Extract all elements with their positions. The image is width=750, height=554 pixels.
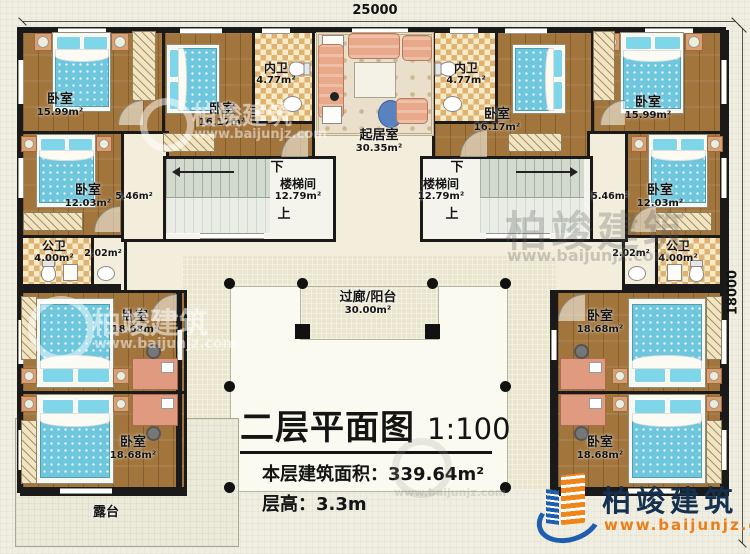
stair-direction-arrow <box>516 171 574 173</box>
column-square <box>295 324 310 339</box>
nightstand <box>21 136 37 152</box>
room-name: 卧室 <box>47 92 73 107</box>
pillow <box>77 399 109 414</box>
nightstand <box>612 396 628 412</box>
wardrobe <box>21 420 37 484</box>
label-corridor-left: 5.46m² <box>108 192 160 202</box>
label-bedroom-top-right: 卧室15.99m² <box>613 96 683 121</box>
pillow <box>634 368 666 383</box>
desk <box>132 358 178 390</box>
pillow <box>56 36 81 50</box>
label-stair-left: 楼梯间12.79m² <box>265 178 331 202</box>
desk <box>132 394 178 426</box>
logo-url: www.baijunjz.com <box>604 516 750 534</box>
window <box>180 28 222 34</box>
wall-right-wing-inner <box>550 290 556 490</box>
nightstand <box>21 368 37 384</box>
dimension-width-label: 25000 <box>345 3 405 18</box>
room-area: 18.68m² <box>98 450 168 461</box>
label-bath-public-left: 公卫4.00m² <box>23 240 85 264</box>
room-area: 15.99m² <box>613 110 683 121</box>
wall-bath-right-bottom <box>622 284 726 290</box>
nightstand <box>34 33 52 51</box>
window <box>18 60 24 104</box>
column-round <box>224 482 235 493</box>
room-name: 公卫 <box>42 239 66 253</box>
plant-pot <box>330 92 339 101</box>
armchair <box>402 35 432 61</box>
room-area: 16.17m² <box>187 117 257 128</box>
label-stair-right-down: 下 <box>448 161 466 175</box>
wardrobe <box>23 212 83 231</box>
dimension-line-top <box>22 21 736 22</box>
room-name: 卧室 <box>587 435 613 450</box>
nightstand <box>21 396 37 412</box>
coffee-table <box>354 62 396 98</box>
sink <box>283 96 302 112</box>
room-name: 内卫 <box>264 61 288 75</box>
window <box>177 330 183 360</box>
sheet-fold <box>55 49 108 61</box>
room-name: 楼梯间 <box>280 177 316 191</box>
room-area: 16.17m² <box>462 122 532 133</box>
label-bath-public-right: 公卫4.00m² <box>647 240 709 264</box>
desk <box>560 358 606 390</box>
desk <box>560 394 606 426</box>
washer <box>667 264 682 281</box>
wardrobe <box>508 133 562 152</box>
label-bedroom-top-left-2: 卧室16.17m² <box>187 103 257 128</box>
nightstand <box>111 33 129 51</box>
wardrobe <box>21 296 37 360</box>
pillow <box>625 36 652 50</box>
room-name: 卧室 <box>122 309 148 324</box>
room-area: 5.46m² <box>591 191 629 202</box>
logo-building-blue-icon <box>546 489 559 525</box>
sheet-fold <box>545 48 554 111</box>
pillow <box>68 138 93 151</box>
room-area: 4.77m² <box>436 75 496 86</box>
window <box>60 488 112 494</box>
sheet-fold <box>40 355 110 368</box>
label-bath-inner-right: 内卫4.77m² <box>436 62 496 86</box>
stair-direction-arrow <box>176 171 234 173</box>
bed <box>512 44 566 114</box>
room-area: 15.99m² <box>25 107 95 118</box>
room-area: 12.79m² <box>265 191 331 202</box>
label-stair-left-down: 下 <box>268 161 286 175</box>
corridor-left <box>121 131 169 242</box>
dimension-height-label: 18000 <box>726 268 741 318</box>
label-bath-inner-left: 内卫4.77m² <box>246 62 306 86</box>
dimension-line-right <box>742 28 743 544</box>
room-name: 起居室 <box>359 128 398 143</box>
room-name: 露台 <box>93 505 119 520</box>
floor-height-row: 层高：3.3m <box>262 490 367 516</box>
sink <box>628 266 646 281</box>
column-round <box>500 278 511 289</box>
floor-area-row: 本层建筑面积：339.64m² <box>262 460 484 486</box>
nightstand <box>631 136 647 152</box>
wardrobe <box>593 31 615 101</box>
column-round <box>224 278 235 289</box>
room-name: 卧室 <box>647 183 673 198</box>
room-name: 过廊/阳台 <box>340 290 397 305</box>
floor-area-value: 339.64m² <box>388 464 484 485</box>
label-stair-right-up: 上 <box>443 208 461 222</box>
nightstand <box>685 33 703 51</box>
logo: 柏竣建筑 www.baijunjz.com <box>536 472 746 548</box>
room-name: 公卫 <box>666 239 690 253</box>
corridor-right <box>587 131 628 242</box>
scale-label: 1:100 <box>427 412 511 446</box>
chair <box>574 344 589 359</box>
pillow <box>669 399 701 414</box>
room-area: 18.68m² <box>565 450 635 461</box>
pillow <box>553 81 563 110</box>
washer <box>63 264 78 281</box>
dimension-value: 18000 <box>726 270 741 315</box>
nightstand <box>113 396 129 412</box>
room-name: 卧室 <box>587 309 613 324</box>
nightstand <box>706 368 722 384</box>
stair-landing <box>480 197 584 234</box>
sheet-fold <box>40 413 110 426</box>
stair-up: 上 <box>445 207 458 222</box>
window <box>721 60 727 104</box>
nightstand <box>707 136 723 152</box>
label-terrace: 露台 <box>80 506 132 520</box>
wardrobe <box>655 212 712 231</box>
label-balcony: 过廊/阳台30.00m² <box>320 291 416 316</box>
sink <box>97 266 115 281</box>
armchair <box>396 98 428 124</box>
label-bedroom-bottom-right-1: 卧室18.68m² <box>565 310 635 335</box>
room-name: 内卫 <box>454 61 478 75</box>
room-area: 4.00m² <box>647 253 709 264</box>
label-small-hall-left: 2.02m² <box>80 249 126 259</box>
pillow <box>77 368 109 383</box>
stair-down: 下 <box>450 160 463 175</box>
room-area: 5.46m² <box>115 191 153 202</box>
window <box>486 233 550 239</box>
pillow <box>652 138 677 151</box>
column-round <box>224 381 235 392</box>
toilet <box>689 264 704 282</box>
sofa <box>348 33 400 59</box>
pillow <box>40 138 65 151</box>
pillow <box>42 399 74 414</box>
label-bedroom-bottom-left-2: 卧室18.68m² <box>98 436 168 461</box>
wardrobe <box>132 31 156 101</box>
room-name: 卧室 <box>484 107 510 122</box>
stair-down: 下 <box>270 160 283 175</box>
dimension-value: 25000 <box>352 3 397 18</box>
chair <box>146 344 161 359</box>
sheet-fold <box>632 413 702 426</box>
floor-area-label: 本层建筑面积： <box>262 464 388 485</box>
room-name: 卧室 <box>635 95 661 110</box>
column-square <box>425 324 440 339</box>
pillow <box>83 36 108 50</box>
pillow <box>680 138 705 151</box>
room-area: 12.79m² <box>408 191 474 202</box>
pillow <box>42 368 74 383</box>
label-bedroom-top-left: 卧室15.99m² <box>25 93 95 118</box>
pillow <box>654 36 681 50</box>
stair-landing <box>166 197 270 234</box>
window <box>200 233 264 239</box>
column-round <box>500 381 511 392</box>
nightstand <box>96 136 112 152</box>
room-name: 卧室 <box>75 183 101 198</box>
room-name: 卧室 <box>209 102 235 117</box>
logo-name: 柏竣建筑 <box>602 478 738 520</box>
room-area: 4.77m² <box>246 75 306 86</box>
window <box>450 28 478 34</box>
nightstand <box>706 396 722 412</box>
page-title: 二层平面图 <box>240 408 415 448</box>
label-living: 起居室30.35m² <box>344 129 414 154</box>
label-corridor-right: 5.46m² <box>584 192 636 202</box>
window <box>721 158 727 198</box>
side-table <box>322 106 342 124</box>
room-name: 楼梯间 <box>423 177 459 191</box>
stair-up: 上 <box>277 207 290 222</box>
title-block: 二层平面图1:100 <box>240 400 492 454</box>
room-area: 18.68m² <box>100 324 170 335</box>
room-area: 30.35m² <box>344 143 414 154</box>
room-area: 2.02m² <box>612 248 650 259</box>
column-round <box>500 482 511 493</box>
sink <box>443 96 462 112</box>
room-area: 2.02m² <box>84 248 122 259</box>
pillow <box>669 368 701 383</box>
wardrobe <box>706 296 722 360</box>
bed <box>628 394 706 484</box>
label-stair-right: 楼梯间12.79m² <box>408 178 474 202</box>
room-area: 4.00m² <box>23 253 85 264</box>
window <box>551 330 557 360</box>
room-area: 30.00m² <box>320 305 416 316</box>
label-stair-left-up: 上 <box>275 208 293 222</box>
label-bedroom-top-right-2: 卧室16.17m² <box>462 108 532 133</box>
floor-height-value: 3.3m <box>316 494 367 515</box>
column-round <box>297 278 308 289</box>
window <box>262 28 290 34</box>
pillow <box>634 399 666 414</box>
sheet-fold <box>178 48 187 111</box>
window <box>18 158 24 198</box>
floor-plan-canvas: 卧室15.99m² 卧室16.17m² 内卫4.77m² 起居室30.35m² … <box>0 0 750 554</box>
bed <box>628 298 706 388</box>
window <box>505 28 547 34</box>
nightstand <box>113 368 129 384</box>
room-name: 卧室 <box>120 435 146 450</box>
toilet <box>41 264 56 282</box>
logo-building-orange-icon <box>561 473 585 526</box>
sheet-fold <box>632 355 702 368</box>
wardrobe <box>163 133 215 152</box>
nightstand <box>612 368 628 384</box>
floor-height-label: 层高： <box>262 494 316 515</box>
label-bedroom-bottom-right-2: 卧室18.68m² <box>565 436 635 461</box>
label-bedroom-bottom-left-1: 卧室18.68m² <box>100 310 170 335</box>
room-area: 18.68m² <box>565 324 635 335</box>
pillow <box>553 49 563 78</box>
column-round <box>427 278 438 289</box>
wall-bath-left-bottom <box>17 284 121 290</box>
